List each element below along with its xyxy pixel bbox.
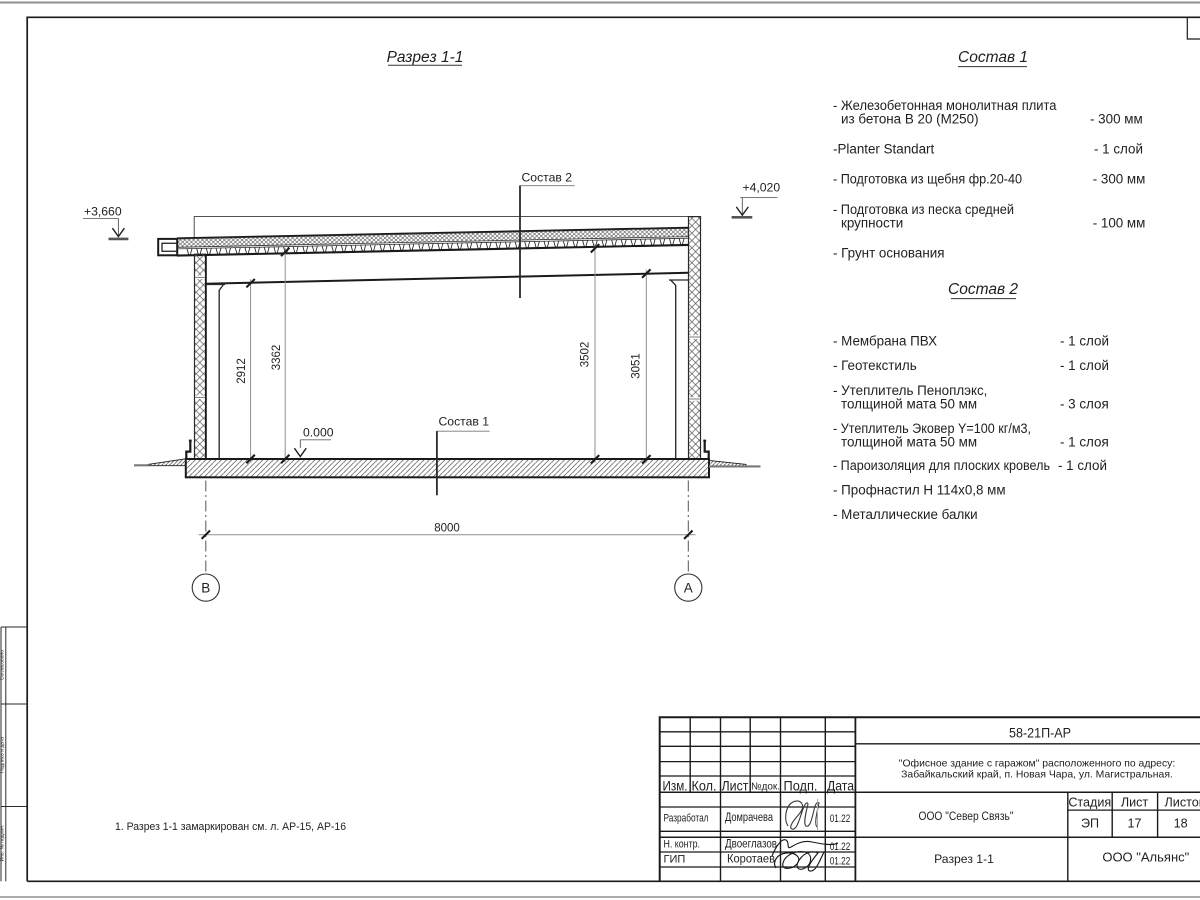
- svg-text:Забайкальский край, п. Новая Ч: Забайкальский край, п. Новая Чара, ул. М…: [901, 769, 1173, 781]
- svg-text:Лист: Лист: [1121, 795, 1149, 809]
- svg-text:Изм.: Изм.: [663, 779, 688, 794]
- svg-text:Лист: Лист: [722, 779, 749, 794]
- svg-text:№док.: №док.: [751, 782, 780, 793]
- svg-text:- 1 слой: - 1 слой: [1094, 141, 1143, 156]
- svg-text:- Пароизоляция для плоских кро: - Пароизоляция для плоских кровель: [833, 458, 1050, 473]
- svg-text:01.22: 01.22: [830, 813, 851, 825]
- svg-text:- 300 мм: - 300 мм: [1090, 112, 1143, 127]
- svg-text:+3,660: +3,660: [84, 205, 122, 219]
- svg-text:+4,020: +4,020: [743, 180, 781, 194]
- svg-text:01.22: 01.22: [830, 841, 851, 853]
- svg-text:1. Разрез 1-1 замаркирован см.: 1. Разрез 1-1 замаркирован см. л. АР-15,…: [115, 821, 346, 833]
- svg-text:3051: 3051: [631, 353, 643, 379]
- svg-text:3362: 3362: [271, 345, 283, 371]
- svg-text:0.000: 0.000: [303, 426, 334, 440]
- svg-text:18: 18: [1174, 817, 1188, 831]
- svg-text:толщиной мата 50 мм: толщиной мата 50 мм: [841, 397, 977, 412]
- svg-text:- 3 слоя: - 3 слоя: [1060, 397, 1109, 412]
- svg-text:Состав 1: Состав 1: [958, 49, 1028, 66]
- svg-text:- Металлические балки: - Металлические балки: [833, 507, 978, 522]
- svg-text:ООО "Альянс": ООО "Альянс": [1102, 850, 1189, 865]
- svg-text:17: 17: [1127, 817, 1141, 831]
- svg-text:Состав 1: Состав 1: [439, 415, 490, 429]
- svg-text:- Подготовка из щебня фр.20-40: - Подготовка из щебня фр.20-40: [833, 172, 1022, 187]
- svg-text:Коротаев: Коротаев: [727, 854, 775, 866]
- svg-text:Кол.: Кол.: [692, 779, 717, 794]
- svg-text:толщиной мата 50 мм: толщиной мата 50 мм: [841, 435, 977, 450]
- svg-text:Разработал: Разработал: [664, 812, 709, 824]
- svg-text:ГИП: ГИП: [664, 854, 686, 866]
- svg-text:2912: 2912: [236, 358, 248, 384]
- svg-text:Разрез 1-1: Разрез 1-1: [387, 49, 464, 66]
- svg-text:Подп.: Подп.: [784, 779, 818, 794]
- svg-text:58-21П-АР: 58-21П-АР: [1009, 726, 1071, 741]
- svg-text:- Геотекстиль: - Геотекстиль: [833, 358, 917, 373]
- svg-text:Листов: Листов: [1165, 795, 1200, 809]
- svg-text:Состав 2: Состав 2: [948, 281, 1018, 298]
- svg-text:- Мембрана ПВХ: - Мембрана ПВХ: [833, 333, 937, 348]
- svg-text:8000: 8000: [434, 522, 460, 534]
- svg-text:Н. контр.: Н. контр.: [664, 839, 701, 851]
- svg-text:- 1 слой: - 1 слой: [1060, 358, 1109, 373]
- svg-text:- 300 мм: - 300 мм: [1093, 172, 1146, 187]
- svg-text:-Planter Standart: -Planter Standart: [833, 141, 935, 156]
- svg-text:ЭП: ЭП: [1081, 817, 1099, 831]
- svg-text:3502: 3502: [579, 342, 591, 368]
- svg-text:ООО "Север Связь": ООО "Север Связь": [919, 811, 1014, 823]
- svg-text:Инв. № подлин.: Инв. № подлин.: [0, 825, 6, 862]
- svg-text:А: А: [684, 580, 693, 595]
- svg-text:Двоеглазов: Двоеглазов: [725, 839, 777, 851]
- svg-text:- Грунт основания: - Грунт основания: [833, 246, 944, 261]
- svg-text:крупности: крупности: [841, 215, 903, 230]
- svg-text:из бетона В 20 (М250): из бетона В 20 (М250): [841, 112, 979, 127]
- svg-text:01.22: 01.22: [830, 855, 851, 867]
- svg-text:Подпись и дата: Подпись и дата: [0, 737, 6, 773]
- svg-text:"Офисное здание с гаражом" рас: "Офисное здание с гаражом" расположенног…: [899, 758, 1175, 770]
- svg-text:Домрачева: Домрачева: [725, 812, 773, 824]
- svg-text:Состав 2: Состав 2: [522, 170, 573, 184]
- svg-text:- 1 слой: - 1 слой: [1058, 458, 1107, 473]
- svg-text:- Профнастил Н 114х0,8 мм: - Профнастил Н 114х0,8 мм: [833, 483, 1006, 498]
- svg-text:Разрез 1-1: Разрез 1-1: [934, 852, 994, 866]
- svg-text:Согласовано: Согласовано: [0, 650, 6, 680]
- svg-text:- 1 слой: - 1 слой: [1060, 333, 1109, 348]
- svg-text:В: В: [201, 580, 210, 595]
- svg-text:Дата: Дата: [827, 779, 854, 794]
- svg-text:- 100 мм: - 100 мм: [1093, 215, 1146, 230]
- svg-text:Стадия: Стадия: [1068, 795, 1111, 809]
- svg-text:- 1 слоя: - 1 слоя: [1060, 435, 1109, 450]
